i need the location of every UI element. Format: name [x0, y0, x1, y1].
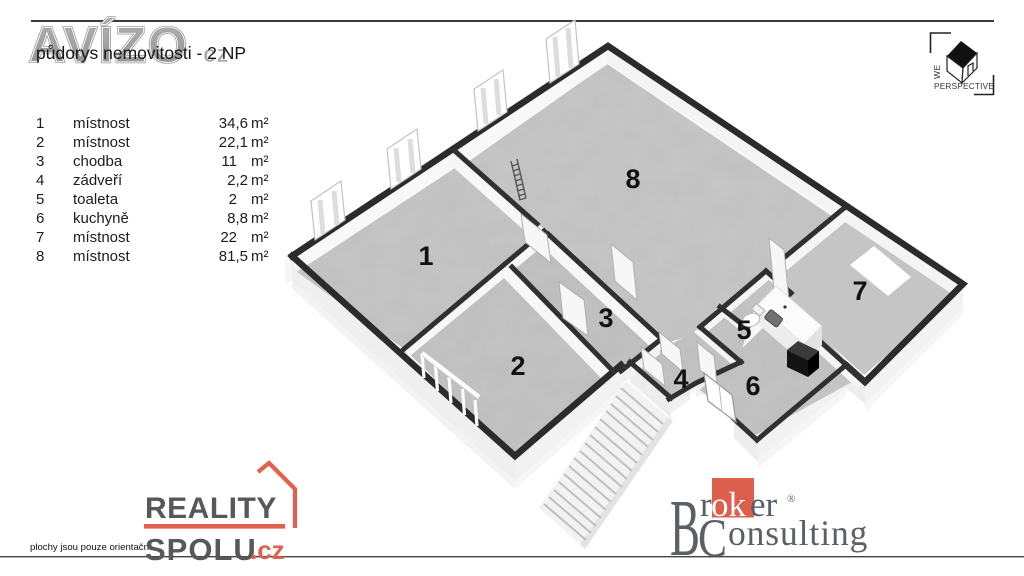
svg-text:plochy jsou pouze orientační: plochy jsou pouze orientační — [30, 542, 152, 553]
svg-text:PERSPECTIVE: PERSPECTIVE — [934, 82, 994, 91]
svg-text:m²: m² — [251, 115, 269, 132]
svg-text:m²: m² — [251, 191, 269, 208]
svg-text:4: 4 — [36, 172, 44, 189]
svg-text:zádveří: zádveří — [73, 172, 123, 189]
svg-text:22,1: 22,1 — [219, 134, 248, 151]
svg-text:SPOLU: SPOLU — [145, 532, 257, 567]
svg-text:toaleta: toaleta — [73, 191, 119, 208]
svg-text:7: 7 — [852, 276, 867, 306]
svg-text:půdorys nemovitosti - 2 NP: půdorys nemovitosti - 2 NP — [36, 43, 246, 63]
svg-text:5: 5 — [36, 191, 44, 208]
svg-text:11: 11 — [221, 153, 237, 170]
svg-text:8: 8 — [36, 248, 44, 265]
svg-text:4: 4 — [673, 364, 688, 394]
svg-text:5: 5 — [736, 315, 751, 345]
svg-text:81,5: 81,5 — [219, 248, 248, 265]
svg-text:7: 7 — [36, 229, 44, 246]
svg-text:místnost: místnost — [73, 229, 131, 246]
svg-text:m²: m² — [251, 248, 269, 265]
svg-text:onsulting: onsulting — [728, 513, 868, 553]
svg-text:místnost: místnost — [73, 248, 131, 265]
svg-text:kuchyně: kuchyně — [73, 210, 129, 227]
svg-text:3: 3 — [36, 153, 44, 170]
svg-text:C: C — [698, 508, 727, 568]
svg-text:22: 22 — [220, 229, 237, 246]
svg-text:8: 8 — [625, 164, 640, 194]
svg-text:WE: WE — [932, 64, 942, 79]
svg-text:chodba: chodba — [73, 153, 123, 170]
svg-text:.cz: .cz — [250, 535, 285, 565]
svg-text:m²: m² — [251, 172, 269, 189]
svg-text:2: 2 — [229, 191, 237, 208]
svg-text:1: 1 — [36, 115, 44, 132]
svg-text:m²: m² — [251, 153, 269, 170]
svg-text:®: ® — [787, 493, 795, 505]
svg-text:34,6: 34,6 — [219, 115, 248, 132]
svg-text:2: 2 — [510, 351, 525, 381]
svg-text:REALITY: REALITY — [145, 492, 277, 525]
svg-text:3: 3 — [598, 303, 613, 333]
svg-text:místnost: místnost — [73, 134, 131, 151]
svg-text:2: 2 — [36, 134, 44, 151]
svg-text:B: B — [670, 485, 700, 573]
svg-text:6: 6 — [36, 210, 44, 227]
svg-text:2,2: 2,2 — [227, 172, 248, 189]
svg-text:m²: m² — [251, 229, 269, 246]
svg-text:místnost: místnost — [73, 115, 131, 132]
svg-text:m²: m² — [251, 134, 269, 151]
svg-text:1: 1 — [418, 241, 433, 271]
svg-text:6: 6 — [745, 371, 760, 401]
svg-text:8,8: 8,8 — [227, 210, 248, 227]
svg-text:m²: m² — [251, 210, 269, 227]
